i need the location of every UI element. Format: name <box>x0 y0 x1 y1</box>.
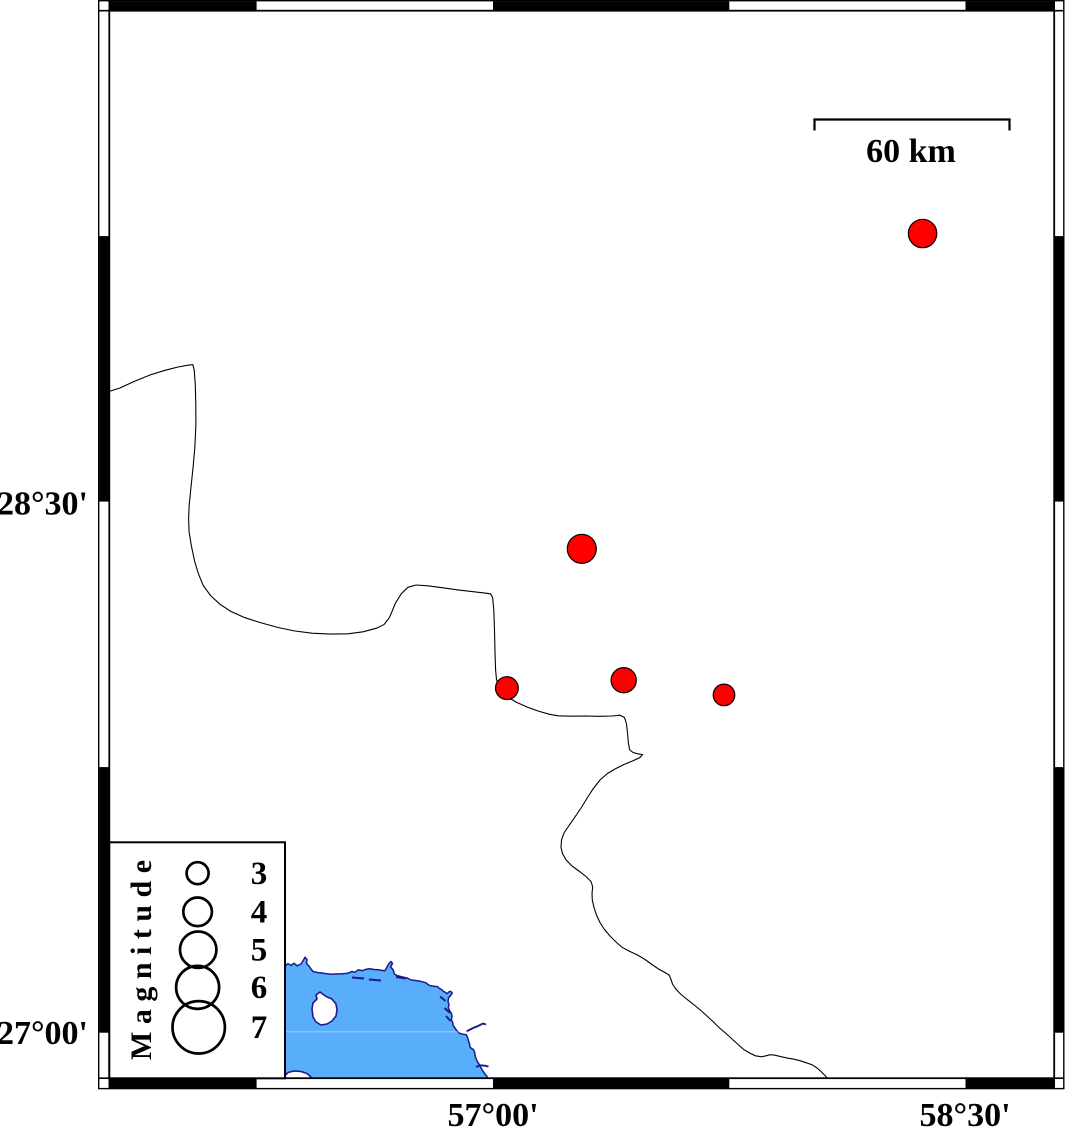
svg-text:Magnitude: Magnitude <box>125 852 158 1060</box>
svg-text:60 km: 60 km <box>866 133 956 170</box>
svg-text:58°30': 58°30' <box>919 1097 1010 1128</box>
svg-text:6: 6 <box>251 970 268 1006</box>
svg-text:4: 4 <box>251 895 268 931</box>
svg-text:27°00': 27°00' <box>0 1015 88 1052</box>
svg-text:3: 3 <box>251 856 268 892</box>
svg-text:7: 7 <box>251 1010 268 1046</box>
svg-text:57°00': 57°00' <box>447 1097 538 1128</box>
svg-text:5: 5 <box>251 933 268 969</box>
svg-text:28°30': 28°30' <box>0 486 88 523</box>
